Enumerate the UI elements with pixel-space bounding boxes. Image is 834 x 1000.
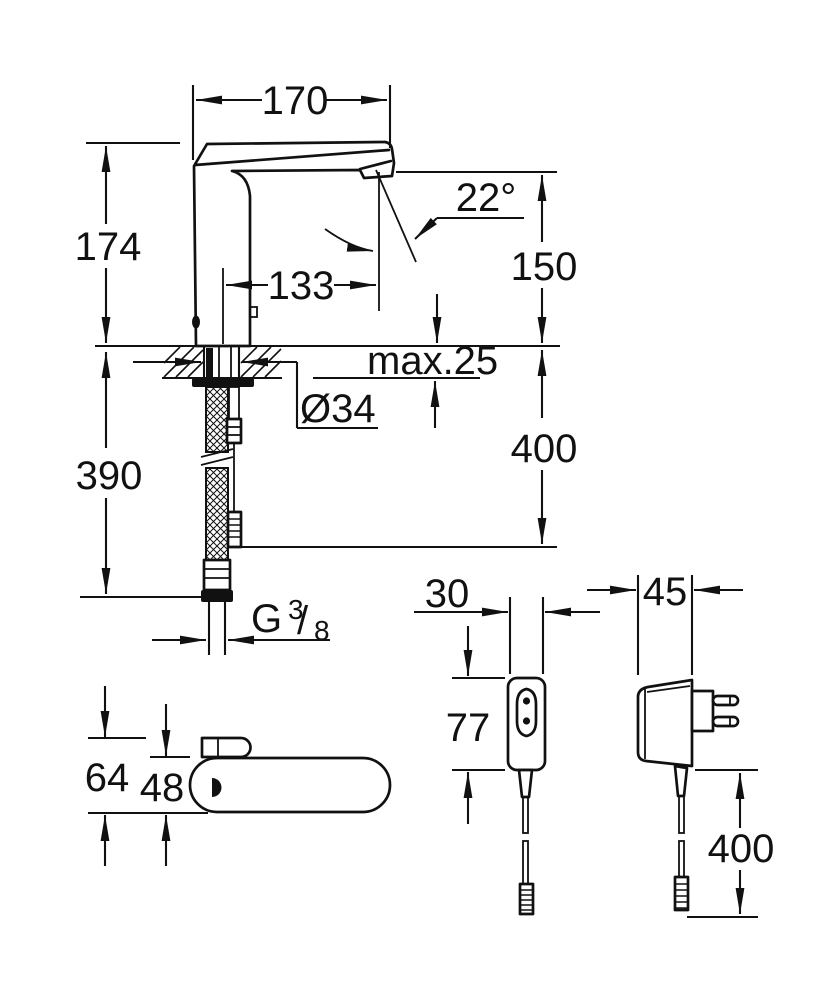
dim-cable-below-deck-label: 400 [511, 427, 578, 471]
dim-hose-below-deck: 390 [76, 352, 201, 597]
cable-connector [228, 512, 241, 547]
plug-body-side [638, 680, 692, 766]
g38-nut [201, 590, 233, 602]
braided-hose-lower [206, 468, 228, 560]
dim-outlet-angle: 22° [325, 170, 524, 311]
psu-cable-connector [520, 884, 533, 914]
psu-socket-hole-top [523, 697, 530, 704]
sensor-window [192, 316, 200, 329]
spout-tab-top-view [202, 738, 251, 757]
psu-cable-upper [523, 797, 528, 833]
dim-plug-cable-length: 400 [687, 770, 774, 917]
psu-cable-strain-relief [519, 770, 532, 797]
dim-body-depth: 48 [140, 704, 190, 866]
mounting-washer [192, 378, 254, 387]
psu-cable-lower [523, 841, 528, 884]
outlet-angle-line [376, 170, 416, 262]
dim-psu-width: 30 [414, 572, 600, 674]
dim-hole-diameter-label: Ø34 [300, 387, 376, 431]
hose-adapter [204, 560, 230, 590]
dim-plug-depth: 45 [587, 570, 743, 675]
dim-thread-size: G 3 / 8 [152, 594, 330, 646]
technical-drawing-page: 170 174 22° 150 133 max.25 Ø34 [0, 0, 834, 1000]
technical-drawing: 170 174 22° 150 133 max.25 Ø34 [0, 0, 834, 1000]
below-deck-assembly [201, 387, 241, 655]
dim-hose-below-deck-label: 390 [76, 454, 143, 498]
dim-psu-height: 77 [446, 626, 505, 824]
dim-psu-width-label: 30 [425, 572, 470, 616]
dim-body-depth-label: 48 [140, 766, 185, 810]
dim-spout-length-label: 170 [262, 79, 329, 123]
faucet-body-outline [194, 142, 394, 346]
thread-denominator: 8 [314, 615, 330, 646]
dim-plug-cable-length-label: 400 [708, 827, 775, 871]
threaded-rod [206, 348, 213, 378]
plug-pin-upper [713, 696, 738, 705]
faucet-side-view [192, 142, 394, 346]
dim-height-label: 174 [75, 225, 142, 269]
dim-plug-depth-label: 45 [643, 570, 688, 614]
dim-height-above-deck: 174 [75, 143, 180, 343]
braided-hose-upper [206, 387, 228, 452]
threaded-shank [204, 347, 239, 378]
electrical-cable [227, 387, 241, 547]
dim-overall-depth-label: 64 [85, 756, 130, 800]
faucet-top-view: 64 48 [85, 686, 390, 866]
angle-arc [325, 229, 373, 251]
plug-cable-lower [679, 841, 684, 877]
plug-cable-strain-relief [675, 766, 687, 796]
dim-outlet-height-label: 150 [511, 245, 578, 289]
thread-g: G [251, 597, 282, 641]
cable-plug-upper [227, 419, 241, 443]
plug-pin-base [692, 691, 713, 731]
plug-cable-upper [679, 796, 684, 833]
thread-slash: / [297, 599, 309, 643]
psu-socket-hole-bottom [523, 717, 530, 724]
dim-deck-thickness-label: max.25 [367, 339, 498, 383]
power-supply-front-view: 30 77 [414, 572, 600, 914]
dim-deck-thickness: max.25 [367, 294, 498, 428]
plug-pin-lower [713, 717, 738, 726]
plug-cable-connector [675, 877, 688, 910]
power-supply-side-view: 45 400 [587, 570, 774, 917]
dim-angle-label: 22° [456, 176, 517, 220]
dim-outlet-reach-label: 133 [268, 264, 335, 308]
dim-psu-height-label: 77 [446, 706, 491, 750]
